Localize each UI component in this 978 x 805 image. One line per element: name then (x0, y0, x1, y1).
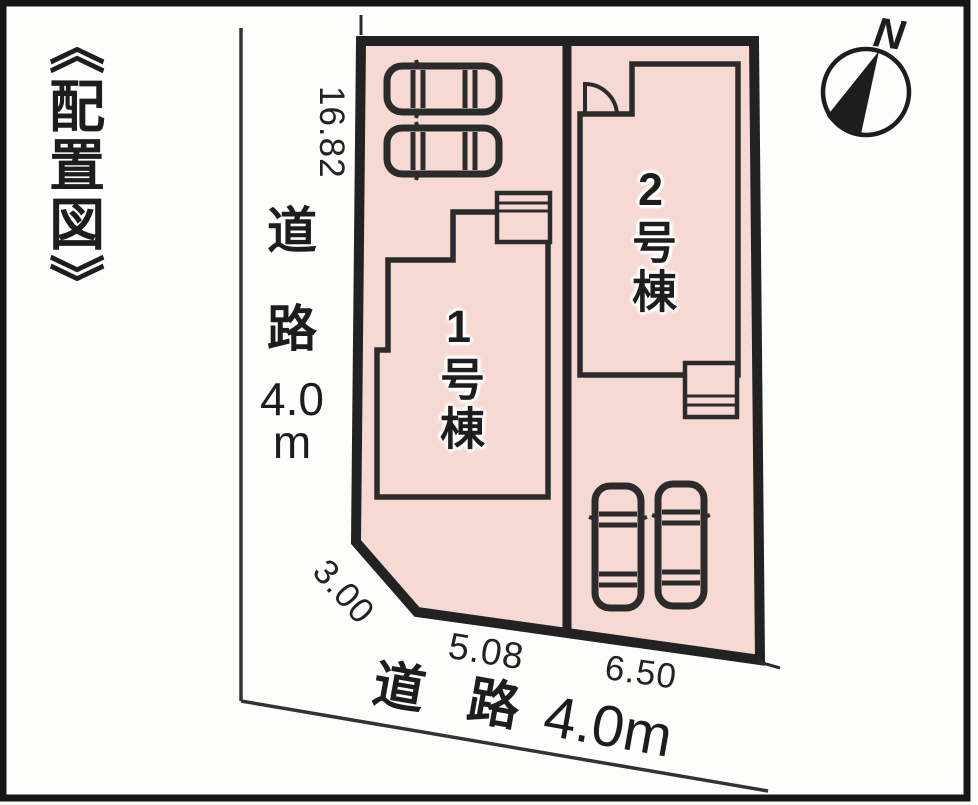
building-2-porch (685, 363, 737, 417)
bottom-road-label-char: 路 (464, 675, 524, 735)
site-boundary (356, 41, 760, 660)
building-2-label: 2号棟 (628, 164, 673, 317)
building-1-label: 1号棟 (436, 301, 481, 454)
site-plan-page: 《配置図》 道 路 4.0 m 16.82 3.00 5.08 6.50 1号棟… (0, 0, 978, 805)
left-road-width-unit: m (273, 422, 311, 463)
left-road-label-char: 道 (267, 206, 317, 256)
left-road-label: 道 路 4.0 m (248, 206, 336, 463)
bottom-road-label-char: 道 (369, 658, 429, 718)
dimension-left-side: 16.82 (311, 86, 351, 179)
left-road-label-char: 路 (267, 304, 317, 354)
north-compass-icon (823, 49, 909, 135)
building-1-porch (497, 193, 550, 242)
page-title: 《配置図》 (42, 18, 104, 313)
